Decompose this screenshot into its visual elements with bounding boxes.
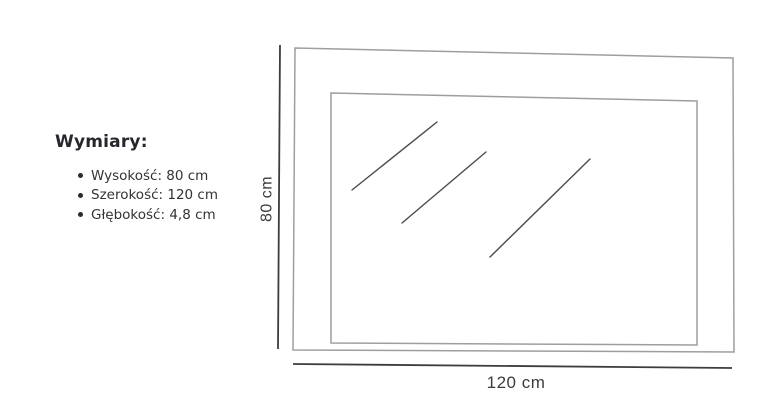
- mirror-dimension-drawing: 80 cm 120 cm: [0, 0, 764, 400]
- width-dimension-line: [293, 364, 732, 368]
- height-dimension-line: [278, 45, 280, 349]
- height-dimension-label: 80 cm: [259, 176, 276, 222]
- mirror-glass-panel: [331, 93, 697, 345]
- width-dimension-label: 120 cm: [487, 373, 546, 392]
- glass-reflection-line-2: [402, 152, 486, 223]
- product-dimensions-section: Wymiary: Wysokość: 80 cm Szerokość: 120 …: [0, 0, 764, 400]
- glass-reflection-line-3: [490, 159, 590, 257]
- glass-reflection-line-1: [352, 122, 437, 190]
